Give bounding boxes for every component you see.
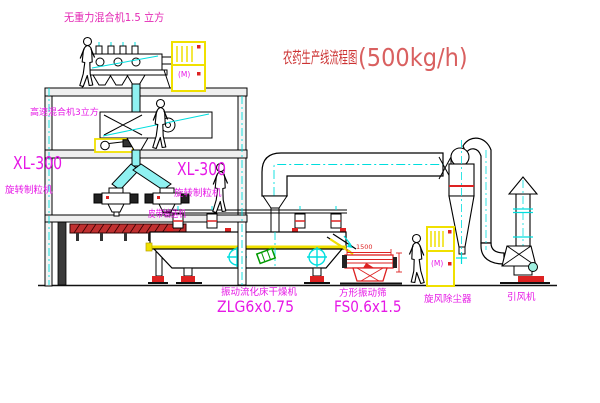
exhaust-duct [262,153,443,232]
induced-draft-fan [500,246,550,283]
cyclone-separator [449,138,504,264]
label-granulator-right-name: 旋转制粒机 [174,189,222,199]
label-cyclone: 旋风除尘器 [424,295,472,305]
person-second-floor [153,100,168,149]
control-cabinet-right [427,227,454,286]
label-top-mixer: 无重力混合机1.5 立方 [64,12,164,23]
label-dryer-model: ZLG6x0.75 [217,299,294,315]
label-mid-mixer: 高速混合机3立方 [30,109,99,118]
control-cabinet-top [172,42,205,91]
person-ground [409,235,424,284]
label-granulator-left-model: XL-300 [13,155,62,173]
label-granulator-left-name: 旋转制粒机 [5,186,53,196]
vertical-feed-pipe [132,84,140,114]
flow-diagram-canvas: 无重力混合机1.5 立方 农药生产线流程图 (500kg/h) 高速混合机3立方… [0,0,600,403]
label-belt-conveyor: 皮带输送机 [148,210,186,220]
diagram-title: 农药生产线流程图 [283,50,357,66]
vibrating-sieve [340,249,402,284]
exhaust-stack [509,177,537,250]
diagram-title-capacity: (500kg/h) [358,45,468,70]
top-floor-mixer [82,42,174,88]
label-sieve-model: FS0.6x1.5 [334,299,402,315]
granulator-left [94,188,138,216]
cabinet-top-motor-symbol: (M) [178,71,190,79]
label-fan: 引风机 [507,293,536,303]
cabinet-right-motor-symbol: (M) [431,260,443,268]
sieve-width-dimension: 1500 [356,244,373,251]
person-top-floor [80,38,95,87]
label-granulator-right-model: XL-300 [177,161,226,179]
